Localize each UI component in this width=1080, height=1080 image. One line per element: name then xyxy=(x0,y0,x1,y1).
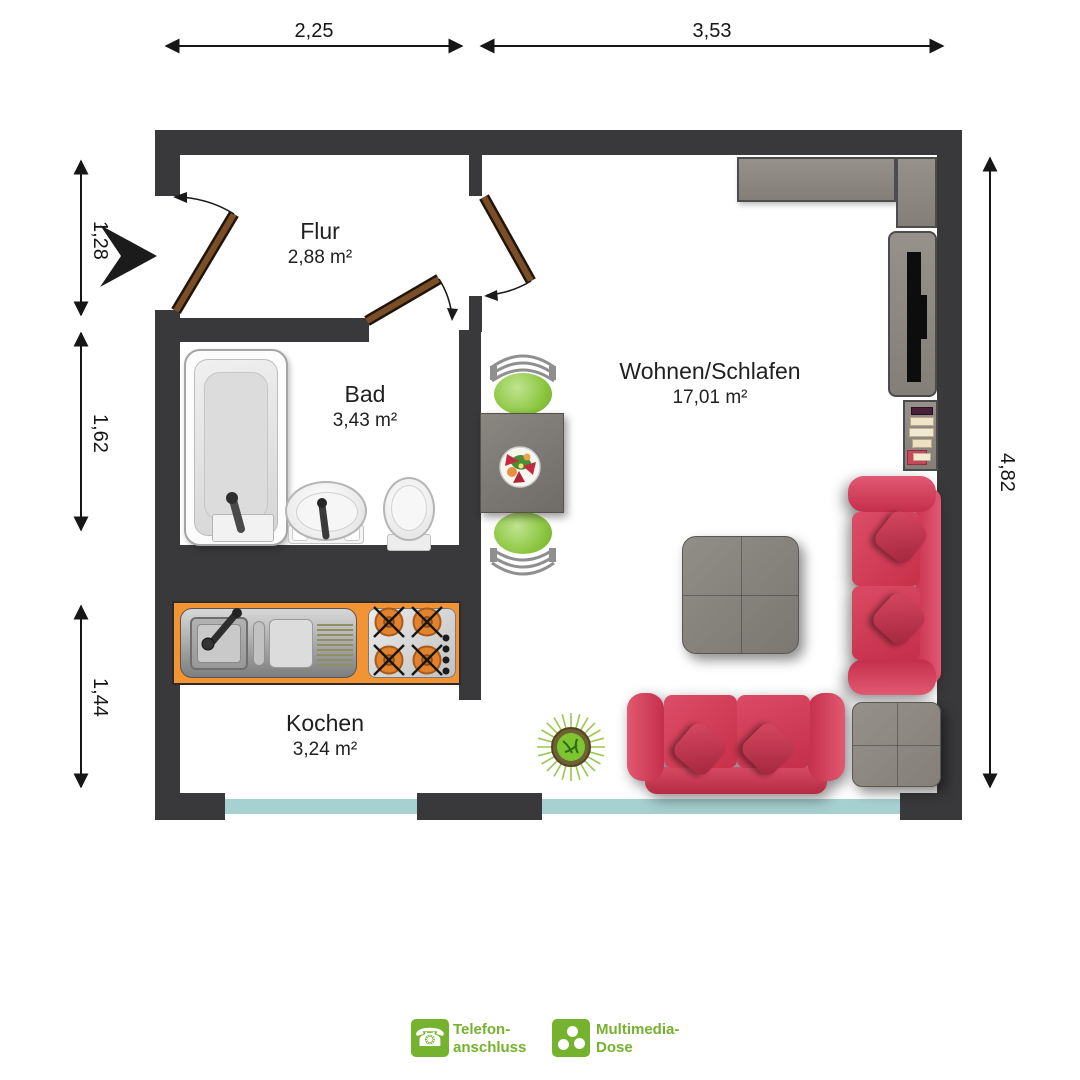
bookshelf xyxy=(903,400,938,471)
toilet-bowl xyxy=(391,485,427,531)
room-label-bad: Bad 3,43 m² xyxy=(300,380,430,433)
sofa-back xyxy=(645,767,827,794)
socket-dot xyxy=(574,1038,585,1049)
dim-left-1: 1,28 xyxy=(88,185,111,295)
sink-basin-right xyxy=(269,619,313,668)
socket-dot xyxy=(558,1039,569,1050)
telephone-icon: ☎ xyxy=(411,1019,449,1057)
legend-multimedia-label: Multimedia- Dose xyxy=(596,1021,679,1057)
sink-divider xyxy=(253,621,265,666)
room-name: Wohnen/Schlafen xyxy=(610,357,810,386)
sink-basin-left-inner xyxy=(197,624,241,663)
stove xyxy=(368,608,456,678)
bathtub-basin xyxy=(204,372,268,520)
sofa-armrest xyxy=(627,693,664,781)
book xyxy=(910,417,934,426)
dim-top-left: 2,25 xyxy=(264,20,364,43)
room-area: 2,88 m² xyxy=(255,246,385,270)
sofa-armrest xyxy=(848,659,936,695)
sink-basin xyxy=(296,492,358,532)
room-name: Bad xyxy=(300,380,430,409)
sideboard xyxy=(737,157,896,202)
corner-cabinet xyxy=(896,157,937,228)
sofa-armrest xyxy=(808,693,845,781)
dim-left-2: 1,62 xyxy=(88,378,111,488)
dining-table xyxy=(480,413,564,513)
dim-right-1: 4,82 xyxy=(995,417,1018,527)
kitchen-sink-unit xyxy=(180,608,357,678)
table-seam xyxy=(741,537,742,653)
tv-mount xyxy=(921,295,927,339)
room-name: Flur xyxy=(255,217,385,246)
sofa-horizontal xyxy=(627,690,845,794)
multimedia-socket-icon xyxy=(552,1019,590,1057)
book xyxy=(909,428,934,437)
telephone-glyph: ☎ xyxy=(411,1019,449,1057)
sofa-armrest xyxy=(848,476,936,512)
legend-line: Multimedia- xyxy=(596,1021,679,1039)
room-label-kochen: Kochen 3,24 m² xyxy=(260,709,390,762)
sink-drainer xyxy=(317,621,353,667)
bathtub-faucet-plate xyxy=(212,514,274,542)
bathroom-sink xyxy=(285,481,367,541)
legend-line: Telefon- xyxy=(453,1021,526,1039)
tv xyxy=(907,252,921,382)
room-area: 17,01 m² xyxy=(610,386,810,410)
dim-top-right: 3,53 xyxy=(662,20,762,43)
room-name: Kochen xyxy=(260,709,390,738)
dining-chair-top xyxy=(494,373,552,415)
toilet xyxy=(383,477,435,541)
legend-line: anschluss xyxy=(453,1039,526,1057)
table-seam xyxy=(897,703,898,786)
room-area: 3,43 m² xyxy=(300,409,430,433)
floor-plan: 2,25 3,53 1,28 1,62 1,44 4,82 Flur 2,88 … xyxy=(0,0,1080,1080)
dim-left-3: 1,44 xyxy=(88,642,111,752)
legend-line: Dose xyxy=(596,1039,679,1057)
book xyxy=(911,407,933,415)
coffee-table xyxy=(682,536,799,654)
legend-telefon-label: Telefon- anschluss xyxy=(453,1021,526,1057)
room-area: 3,24 m² xyxy=(260,738,390,762)
tv-cabinet xyxy=(888,231,937,397)
socket-dot xyxy=(567,1026,578,1037)
dining-chair-bottom xyxy=(494,512,552,554)
room-label-flur: Flur 2,88 m² xyxy=(255,217,385,270)
book xyxy=(912,439,932,448)
side-table xyxy=(852,702,941,787)
book xyxy=(913,453,931,461)
room-label-wohnen: Wohnen/Schlafen 17,01 m² xyxy=(610,357,810,410)
sofa-vertical xyxy=(846,476,943,695)
